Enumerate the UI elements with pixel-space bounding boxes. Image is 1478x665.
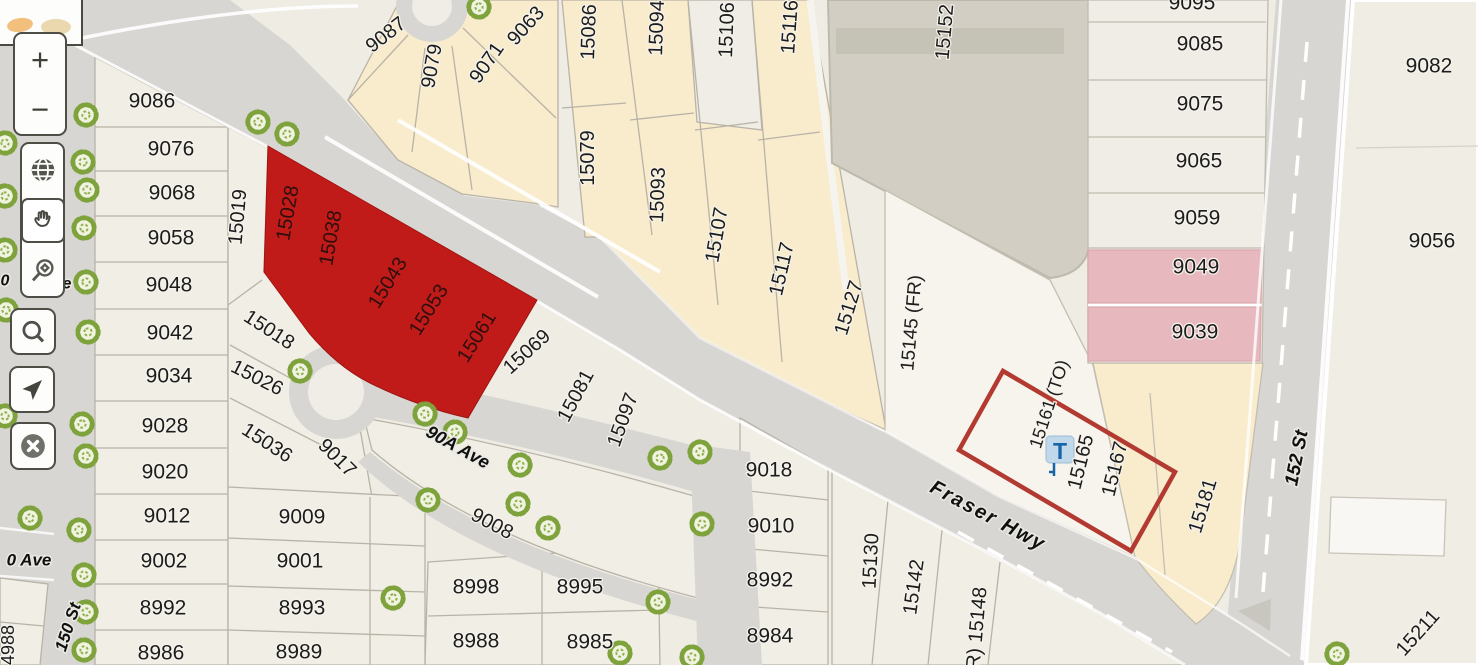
search-button[interactable] (12, 315, 54, 349)
parcel-label: 9068 (149, 182, 196, 205)
close-icon (18, 431, 48, 461)
tree-icon (536, 516, 559, 539)
parcel-label: 8989 (276, 641, 323, 664)
parcel-label: 9018 (746, 459, 793, 482)
basemap-globe-button[interactable] (22, 153, 63, 187)
tree-icon (381, 586, 405, 610)
parcel-label: 9058 (148, 227, 195, 250)
parcel-label: 9085 (1177, 33, 1224, 56)
tree-icon (247, 111, 270, 134)
map-tools-group (20, 142, 65, 298)
parcel-label: 8998 (453, 576, 500, 599)
parcel-label: 8986 (138, 642, 185, 665)
locate-tool (9, 366, 55, 413)
parcel-label: 8988 (453, 630, 500, 653)
parcel-label: 9082 (1406, 55, 1453, 78)
parcel-label: 9048 (146, 274, 193, 297)
parcel-label: 15116 (777, 0, 803, 55)
parcel-label: 9049 (1173, 256, 1220, 279)
parcel-label: 15130 (859, 533, 884, 590)
parcel-label: 8995 (557, 576, 604, 599)
parcel-label: 9075 (1177, 93, 1224, 116)
zoom-in-button[interactable]: + (15, 42, 65, 77)
close-tool (10, 422, 56, 470)
zoom-box-icon (28, 256, 58, 286)
parcel-label: 8985 (567, 631, 614, 654)
parcel-label: 15079 (577, 130, 599, 186)
search-icon (18, 317, 48, 347)
parcel-label: 8992 (747, 569, 794, 592)
parcel-label: 9002 (141, 550, 188, 573)
tree-icon (18, 506, 42, 530)
parcel-label: 9028 (142, 415, 189, 438)
locate-button[interactable] (11, 373, 53, 407)
parcel-label: 9020 (142, 461, 189, 484)
globe-icon (28, 155, 58, 185)
search-tool (10, 308, 56, 355)
parcel-label: 9001 (277, 550, 324, 573)
pan-hand-button[interactable] (21, 198, 65, 243)
parcel-label: 9056 (1409, 230, 1456, 253)
tree-icon (468, 0, 489, 18)
parcel-label: 9012 (144, 505, 191, 528)
parcel-label: 9010 (748, 515, 795, 538)
parcel-label: 9076 (148, 138, 195, 161)
parcel-label: 9034 (146, 365, 193, 388)
zoom-control: + − (13, 32, 67, 136)
parcel-label: 9039 (1172, 321, 1219, 344)
street-label: 0 Ave (7, 551, 52, 570)
close-button[interactable] (12, 429, 54, 463)
parcel-label: 15093 (646, 167, 670, 223)
tree-icon (417, 489, 439, 511)
parcel-label: 9086 (129, 90, 176, 113)
parcel-label: 8992 (140, 597, 187, 620)
parcel-label: 9065 (1176, 150, 1223, 173)
parcel-label: 15106 (715, 2, 739, 58)
tree-icon (76, 105, 96, 125)
parcel-label: 8984 (747, 625, 794, 648)
locate-arrow-icon (17, 375, 47, 405)
zoom-box-button[interactable] (22, 254, 63, 288)
parcel-label: 8993 (279, 597, 326, 620)
parcel-label: 9059 (1174, 207, 1221, 230)
pan-hand-icon (29, 203, 57, 233)
tree-icon (75, 271, 98, 294)
parcel-label: 9042 (147, 322, 194, 345)
parcel-label: 15086 (577, 4, 601, 60)
parcel-label: 9009 (279, 506, 326, 529)
parcel-label: 9095 (1169, 0, 1216, 15)
zoom-out-button[interactable]: − (15, 92, 65, 127)
tree-icon (70, 412, 94, 436)
parcel-label: 4988 (0, 625, 18, 665)
parcel-label: 15094 (645, 0, 669, 56)
transit-station-label: T (1053, 438, 1067, 464)
map-canvas[interactable]: T Fraser Hwy152 St150 St0 Ave90A Ave0e90… (0, 0, 1478, 665)
tree-icon (76, 179, 98, 201)
street-label: 0 (1, 273, 10, 290)
